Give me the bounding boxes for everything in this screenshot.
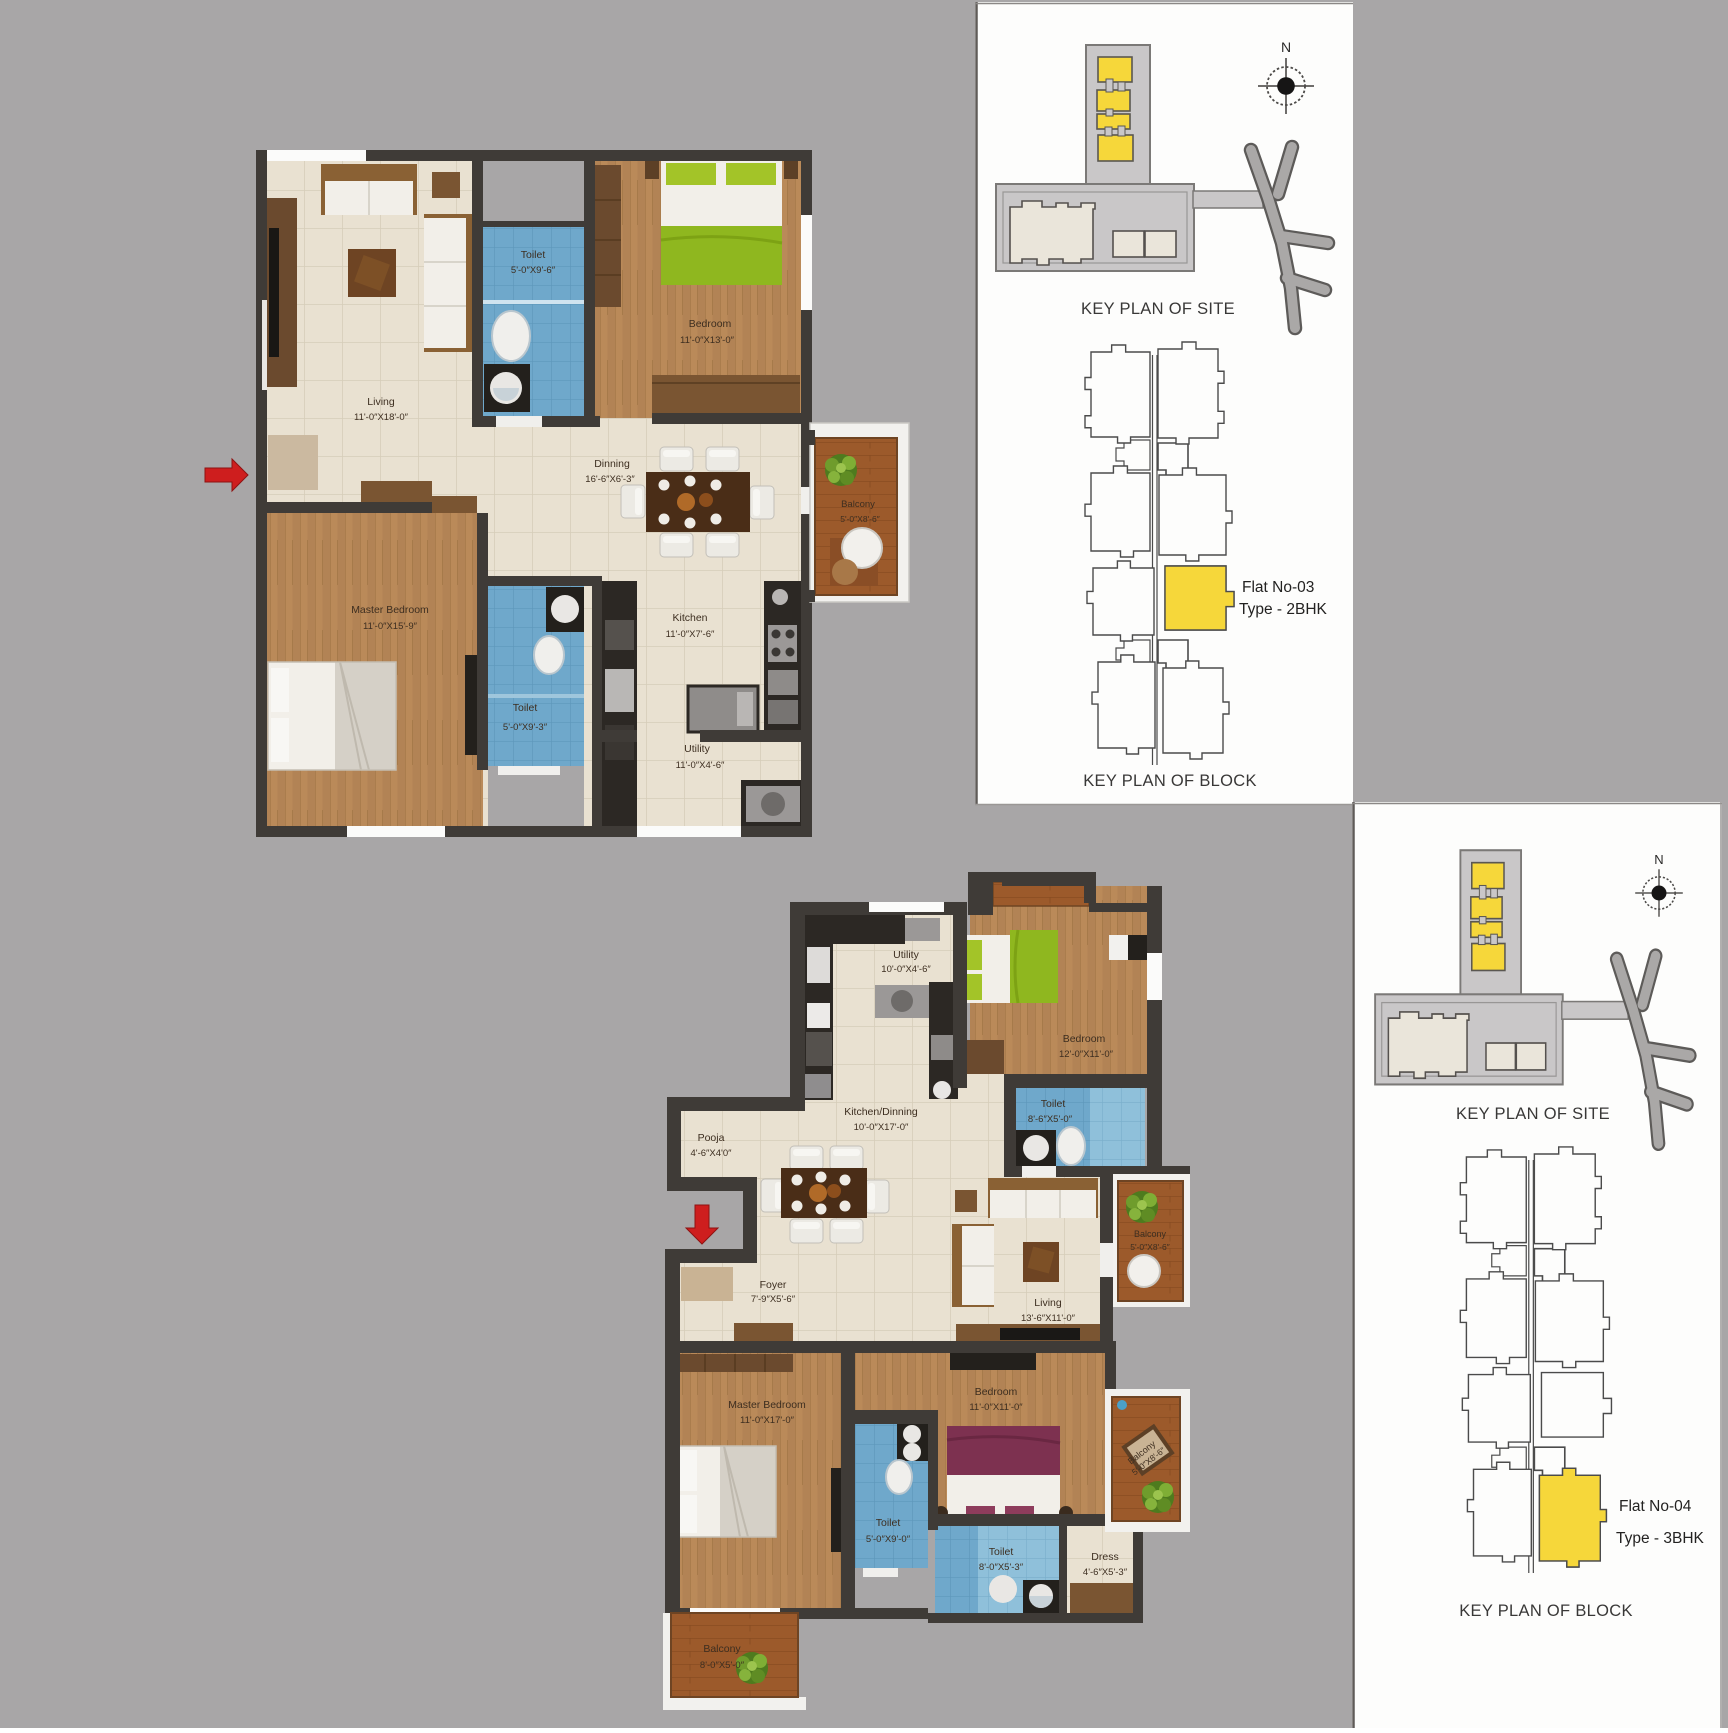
svg-text:Flat No-04: Flat No-04 xyxy=(1619,1498,1692,1515)
svg-text:11'-0″X15'-9″: 11'-0″X15'-9″ xyxy=(363,621,418,632)
svg-text:11'-0″X17'-0″: 11'-0″X17'-0″ xyxy=(740,1415,795,1426)
svg-text:Toilet: Toilet xyxy=(513,702,538,714)
svg-text:Dress: Dress xyxy=(1091,1551,1118,1563)
svg-text:KEY PLAN OF BLOCK: KEY PLAN OF BLOCK xyxy=(1459,1602,1633,1620)
svg-text:Utility: Utility xyxy=(893,949,919,961)
svg-text:10'-0″X17'-0″: 10'-0″X17'-0″ xyxy=(854,1122,909,1133)
svg-text:Living: Living xyxy=(367,396,395,408)
svg-text:N: N xyxy=(1281,39,1291,55)
svg-text:Living: Living xyxy=(1034,1297,1062,1309)
svg-text:Toilet: Toilet xyxy=(989,1546,1014,1558)
svg-text:Master Bedroom: Master Bedroom xyxy=(728,1399,806,1411)
svg-text:Toilet: Toilet xyxy=(521,249,546,261)
svg-text:8'-6″X5'-0″: 8'-6″X5'-0″ xyxy=(1028,1114,1073,1125)
svg-text:5'-0″X8'-6″: 5'-0″X8'-6″ xyxy=(840,514,880,524)
svg-text:Bedroom: Bedroom xyxy=(975,1386,1018,1398)
svg-text:5'-0″X9'-3″: 5'-0″X9'-3″ xyxy=(503,722,548,733)
svg-text:Type - 2BHK: Type - 2BHK xyxy=(1239,601,1328,618)
svg-text:13'-6″X11'-0″: 13'-6″X11'-0″ xyxy=(1021,1313,1076,1324)
svg-text:Foyer: Foyer xyxy=(760,1279,787,1291)
svg-text:Toilet: Toilet xyxy=(876,1517,901,1529)
svg-text:4'-6″X5'-3″: 4'-6″X5'-3″ xyxy=(1083,1567,1128,1578)
svg-text:Dinning: Dinning xyxy=(594,458,630,470)
svg-text:5'-0″X9'-6″: 5'-0″X9'-6″ xyxy=(511,265,556,276)
svg-text:10'-0″X4'-6″: 10'-0″X4'-6″ xyxy=(881,964,931,975)
svg-text:Flat No-03: Flat No-03 xyxy=(1242,579,1314,596)
svg-text:KEY PLAN OF BLOCK: KEY PLAN OF BLOCK xyxy=(1083,772,1257,790)
svg-text:Type - 3BHK: Type - 3BHK xyxy=(1616,1530,1705,1547)
svg-text:Balcony: Balcony xyxy=(703,1643,741,1655)
svg-text:11'-0″X13'-0″: 11'-0″X13'-0″ xyxy=(680,335,735,346)
svg-text:Bedroom: Bedroom xyxy=(689,318,732,330)
svg-text:8'-0″X5'-3″: 8'-0″X5'-3″ xyxy=(979,1562,1024,1573)
svg-text:Bedroom: Bedroom xyxy=(1063,1033,1106,1045)
svg-text:5'-0″X8'-6″: 5'-0″X8'-6″ xyxy=(1130,1242,1170,1252)
svg-text:8'-0″X5'-0″: 8'-0″X5'-0″ xyxy=(700,1660,745,1671)
svg-text:12'-0″X11'-0″: 12'-0″X11'-0″ xyxy=(1059,1049,1114,1060)
svg-text:16'-6″X6'-3″: 16'-6″X6'-3″ xyxy=(585,474,635,485)
svg-text:N: N xyxy=(1654,852,1663,867)
svg-text:11'-0″X7'-6″: 11'-0″X7'-6″ xyxy=(666,629,715,640)
svg-text:7'-9″X5'-6″: 7'-9″X5'-6″ xyxy=(751,1294,796,1305)
svg-text:Balcony: Balcony xyxy=(841,499,875,510)
svg-text:Toilet: Toilet xyxy=(1041,1098,1066,1110)
svg-text:5'-0″X9'-0″: 5'-0″X9'-0″ xyxy=(866,1534,911,1545)
svg-text:KEY PLAN OF SITE: KEY PLAN OF SITE xyxy=(1081,300,1235,318)
svg-text:KEY PLAN OF SITE: KEY PLAN OF SITE xyxy=(1456,1105,1610,1123)
svg-text:Kitchen/Dinning: Kitchen/Dinning xyxy=(844,1106,918,1118)
svg-text:Balcony: Balcony xyxy=(1134,1229,1167,1239)
svg-text:4'-6″X4'0″: 4'-6″X4'0″ xyxy=(691,1148,733,1159)
svg-text:11'-0″X11'-0″: 11'-0″X11'-0″ xyxy=(969,1402,1023,1413)
svg-text:Utility: Utility xyxy=(684,743,710,755)
svg-text:11'-0″X18'-0″: 11'-0″X18'-0″ xyxy=(354,412,409,423)
svg-text:Master Bedroom: Master Bedroom xyxy=(351,604,429,616)
svg-text:Pooja: Pooja xyxy=(698,1132,725,1144)
svg-text:11'-0″X4'-6″: 11'-0″X4'-6″ xyxy=(676,760,725,771)
svg-text:Kitchen: Kitchen xyxy=(672,612,707,624)
